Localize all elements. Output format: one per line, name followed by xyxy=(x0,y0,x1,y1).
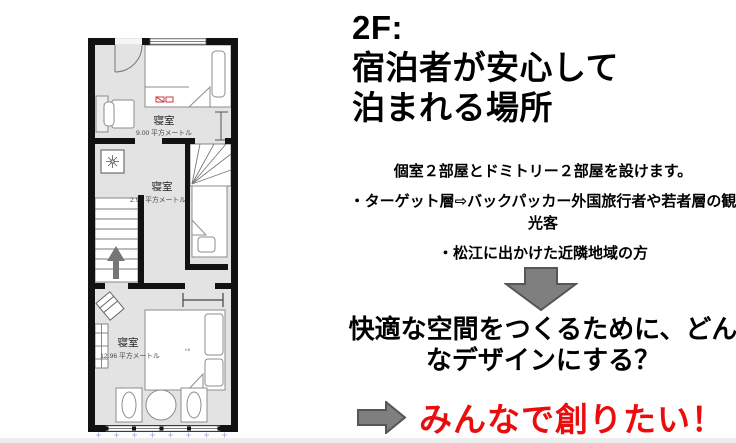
right-arrow-icon xyxy=(357,401,407,434)
target-line-2: 光客 xyxy=(348,213,736,235)
title-line-3: 泊まれる場所 xyxy=(352,88,736,128)
ceiling-fan-icon xyxy=(101,150,124,173)
intro-text: 個室２部屋とドミトリー２部屋を設けます。 xyxy=(348,161,736,183)
target-text: ・ターゲット層⇨バックパッカー外国旅行者や若者層の観 光客 xyxy=(348,191,736,235)
question-text: 快適な空間をつくるために、どん なデザインにする？ xyxy=(348,314,736,376)
slide-title: 2F: 宿泊者が安心して 泊まれる場所 xyxy=(352,8,736,128)
top-window xyxy=(150,39,206,44)
cta-text: みんなで創りたい！ xyxy=(419,393,725,441)
winder-stairs xyxy=(190,144,231,186)
target-line-1: ・ターゲット層⇨バックパッカー外国旅行者や若者層の観 xyxy=(348,191,736,213)
room3-shelf xyxy=(95,324,108,368)
room3-area: 12.96 平方メートル xyxy=(100,351,160,360)
room2-single-bed xyxy=(192,186,227,257)
room3-name: 寝室 xyxy=(118,336,139,349)
down-arrow-icon xyxy=(504,267,578,312)
room1-area: 9.00 平方メートル xyxy=(136,128,192,137)
slide: 寝室 9.00 平方メートル 寝室 2.96 平方メートル 寝室 12.96 平… xyxy=(0,0,736,443)
bottom-strip xyxy=(0,438,736,443)
title-line-2: 宿泊者が安心して xyxy=(352,48,736,88)
floorplan: 寝室 9.00 平方メートル 寝室 2.96 平方メートル 寝室 12.96 平… xyxy=(88,38,238,432)
room3-bed-mark: KB xyxy=(185,347,191,352)
room1-name: 寝室 xyxy=(154,114,175,127)
question-line-1: 快適な空間をつくるために、どん xyxy=(348,314,736,345)
question-line-2: なデザインにする？ xyxy=(348,345,736,376)
room3-seating xyxy=(116,388,207,422)
neighbors-text: ・松江に出かけた近隣地域の方 xyxy=(348,243,736,265)
room1-armchair xyxy=(96,96,134,132)
title-line-1: 2F: xyxy=(352,8,736,48)
room2-name: 寝室 xyxy=(152,180,173,193)
